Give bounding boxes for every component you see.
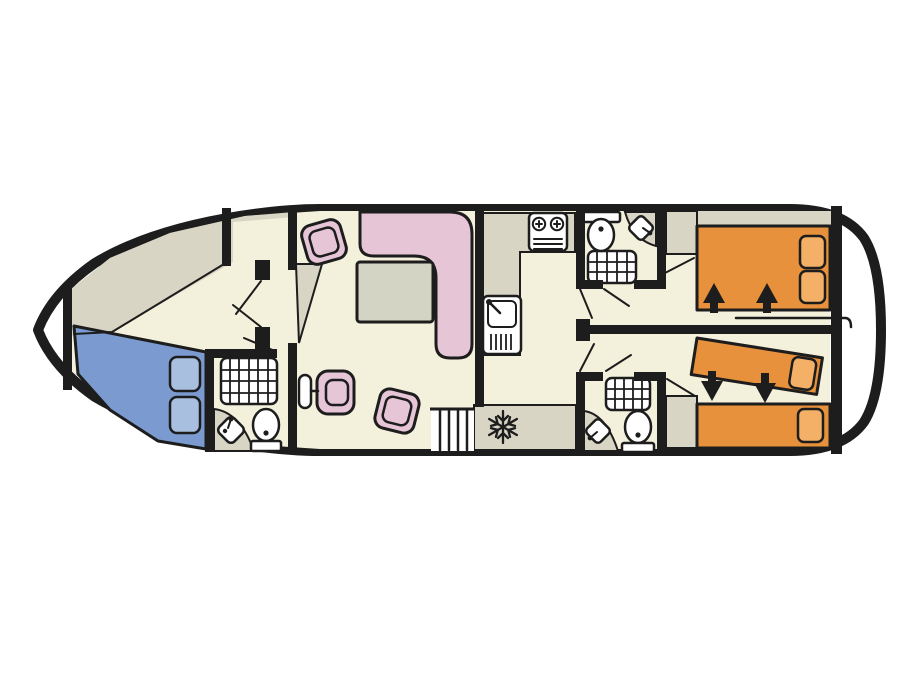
wall-mid-top-bath-right (657, 208, 666, 288)
shower-grid-icon (221, 358, 277, 404)
aft-single-bed-pillow-group (788, 356, 817, 390)
wall-saloon-left-bottom (288, 343, 297, 452)
boat-floor-plan (0, 0, 901, 675)
wall-stern-bulkhead (831, 206, 842, 454)
page (0, 0, 901, 675)
wall-saloon-right (475, 208, 484, 407)
wall-saloon-left-top (288, 208, 297, 270)
chair (373, 387, 421, 435)
toilet-bowl (588, 219, 614, 251)
toilet-mid-bottom-bath (622, 411, 654, 452)
wardrobe-aft-bottom (666, 396, 697, 448)
shower-bow-bath (221, 358, 277, 404)
toilet-bow-bath (251, 409, 281, 451)
shower-mid-top-bath (588, 251, 636, 283)
wall-mid-bottom-bath-stub (576, 372, 603, 381)
wall-galley-right (576, 208, 585, 288)
toilet-dot (598, 226, 603, 231)
shower-mid-bottom-bath (606, 378, 650, 410)
wardrobe-aft-top (666, 211, 697, 254)
pedestal (622, 443, 654, 452)
pillow (170, 397, 200, 433)
wall-bow-cabin-top (222, 208, 231, 266)
pedestal (251, 441, 281, 451)
wheel-icon (299, 375, 311, 408)
aft-single-bed-lower-pillow-group (798, 409, 823, 442)
toilet-bowl (625, 411, 651, 443)
saloon-table (357, 262, 433, 322)
saloon-table-group (357, 262, 433, 322)
wall-mid-top-bath-stub (576, 280, 603, 289)
pillow (170, 357, 200, 391)
wall-bow-bulkhead (63, 284, 72, 390)
basin-drain-dot (223, 429, 227, 433)
pillow (800, 236, 825, 268)
aft-top-shelf (697, 211, 831, 226)
galley-fridge-counter (474, 405, 576, 450)
helm-seat (317, 371, 354, 414)
shower-tray (588, 251, 636, 283)
toilet-dot (263, 430, 268, 435)
toilet-bowl (253, 409, 279, 441)
pillow (798, 409, 823, 442)
wall-corridor-cap (576, 319, 590, 341)
wall-stub (255, 327, 270, 352)
stairs (430, 408, 474, 451)
wall-mid-bottom-bath-right (657, 372, 666, 452)
shower-tray (606, 378, 650, 410)
wall-aft-cabins-divider (590, 325, 836, 334)
wall-bow-bath-left (205, 349, 214, 452)
toilet-dot (635, 432, 640, 437)
stove (529, 213, 567, 251)
pillow (788, 356, 817, 390)
wall-mid-bottom-bath-left (576, 372, 585, 452)
pillow (800, 271, 825, 303)
wall-stub (255, 260, 270, 280)
chair-seat (373, 387, 421, 435)
